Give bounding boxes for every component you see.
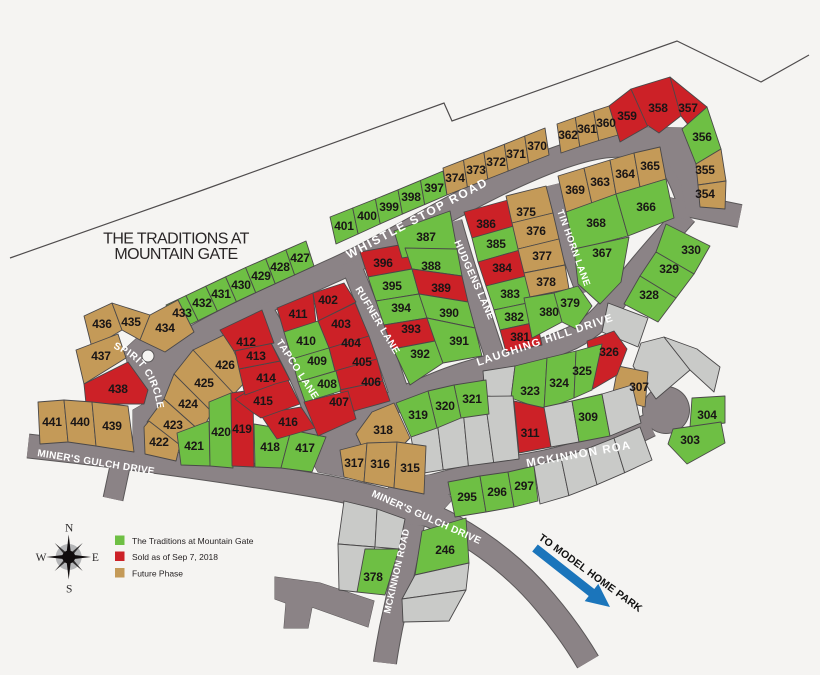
- svg-text:329: 329: [659, 262, 679, 276]
- svg-text:425: 425: [194, 376, 214, 390]
- svg-text:368: 368: [586, 216, 606, 230]
- svg-text:Sold as of Sep 7, 2018: Sold as of Sep 7, 2018: [132, 552, 218, 562]
- svg-text:409: 409: [307, 354, 327, 368]
- svg-text:326: 326: [599, 345, 619, 359]
- svg-text:420: 420: [211, 425, 231, 439]
- svg-text:393: 393: [401, 322, 421, 336]
- svg-text:410: 410: [296, 334, 316, 348]
- svg-text:431: 431: [211, 287, 231, 301]
- svg-text:246: 246: [435, 543, 455, 557]
- svg-text:372: 372: [486, 155, 506, 169]
- svg-text:375: 375: [516, 205, 536, 219]
- svg-text:320: 320: [435, 399, 455, 413]
- svg-text:408: 408: [317, 377, 337, 391]
- svg-text:430: 430: [231, 278, 251, 292]
- svg-text:391: 391: [449, 334, 469, 348]
- svg-text:365: 365: [640, 159, 660, 173]
- svg-text:374: 374: [445, 171, 465, 185]
- svg-text:402: 402: [318, 293, 338, 307]
- svg-text:385: 385: [486, 237, 506, 251]
- svg-text:378: 378: [536, 275, 556, 289]
- svg-text:403: 403: [331, 317, 351, 331]
- svg-text:401: 401: [334, 219, 354, 233]
- svg-text:419: 419: [232, 422, 252, 436]
- svg-text:371: 371: [506, 147, 526, 161]
- svg-text:357: 357: [678, 101, 698, 115]
- svg-text:366: 366: [636, 200, 656, 214]
- svg-text:433: 433: [172, 306, 192, 320]
- svg-text:400: 400: [357, 209, 377, 223]
- svg-text:363: 363: [590, 175, 610, 189]
- svg-text:304: 304: [697, 408, 717, 422]
- svg-text:383: 383: [500, 287, 520, 301]
- svg-text:316: 316: [370, 457, 390, 471]
- svg-text:N: N: [65, 523, 74, 535]
- svg-text:399: 399: [379, 200, 399, 214]
- svg-text:405: 405: [352, 355, 372, 369]
- svg-text:412: 412: [236, 335, 256, 349]
- svg-text:355: 355: [695, 163, 715, 177]
- svg-text:318: 318: [373, 423, 393, 437]
- svg-text:330: 330: [681, 243, 701, 257]
- svg-text:434: 434: [155, 321, 175, 335]
- svg-text:397: 397: [424, 181, 444, 195]
- svg-text:427: 427: [290, 251, 310, 265]
- svg-text:295: 295: [457, 490, 477, 504]
- svg-text:325: 325: [572, 364, 592, 378]
- svg-text:296: 296: [487, 485, 507, 499]
- svg-text:377: 377: [532, 249, 552, 263]
- svg-text:423: 423: [163, 418, 183, 432]
- svg-text:407: 407: [329, 395, 349, 409]
- svg-text:394: 394: [391, 301, 411, 315]
- svg-text:E: E: [92, 552, 99, 564]
- svg-text:311: 311: [521, 426, 540, 440]
- svg-text:324: 324: [549, 376, 569, 390]
- svg-text:369: 369: [565, 183, 585, 197]
- svg-text:429: 429: [251, 269, 271, 283]
- svg-text:362: 362: [558, 128, 578, 142]
- svg-text:411: 411: [289, 307, 308, 321]
- svg-text:414: 414: [256, 371, 276, 385]
- svg-text:418: 418: [260, 440, 280, 454]
- svg-text:382: 382: [504, 310, 524, 324]
- svg-text:426: 426: [215, 358, 235, 372]
- svg-text:428: 428: [270, 260, 290, 274]
- svg-text:387: 387: [416, 230, 436, 244]
- svg-text:309: 309: [578, 410, 598, 424]
- svg-text:S: S: [66, 584, 72, 596]
- svg-text:Future Phase: Future Phase: [132, 569, 183, 579]
- svg-text:435: 435: [121, 315, 141, 329]
- svg-text:361: 361: [577, 122, 597, 136]
- svg-text:388: 388: [421, 259, 441, 273]
- svg-text:413: 413: [246, 349, 266, 363]
- svg-text:392: 392: [410, 347, 430, 361]
- svg-text:432: 432: [192, 296, 212, 310]
- svg-text:378: 378: [363, 570, 383, 584]
- svg-text:354: 354: [695, 187, 715, 201]
- svg-text:390: 390: [439, 306, 459, 320]
- svg-text:323: 323: [520, 384, 540, 398]
- svg-text:370: 370: [527, 139, 547, 153]
- svg-text:303: 303: [680, 433, 700, 447]
- svg-text:395: 395: [382, 279, 402, 293]
- svg-text:439: 439: [102, 419, 122, 433]
- svg-text:386: 386: [476, 217, 496, 231]
- svg-text:317: 317: [344, 456, 364, 470]
- svg-text:380: 380: [539, 305, 559, 319]
- svg-text:416: 416: [278, 415, 298, 429]
- svg-text:424: 424: [178, 397, 198, 411]
- svg-text:321: 321: [462, 392, 482, 406]
- svg-text:436: 436: [92, 317, 112, 331]
- svg-text:328: 328: [639, 288, 659, 302]
- svg-text:364: 364: [615, 167, 635, 181]
- svg-text:417: 417: [295, 441, 315, 455]
- svg-text:376: 376: [526, 224, 546, 238]
- svg-text:356: 356: [692, 130, 712, 144]
- svg-text:THE TRADITIONS AT: THE TRADITIONS AT: [103, 231, 249, 248]
- svg-text:398: 398: [401, 190, 421, 204]
- svg-text:360: 360: [596, 116, 616, 130]
- svg-text:396: 396: [373, 256, 393, 270]
- svg-text:441: 441: [42, 415, 62, 429]
- svg-text:The Traditions at Mountain Gat: The Traditions at Mountain Gate: [132, 536, 254, 546]
- svg-text:415: 415: [253, 394, 273, 408]
- svg-text:404: 404: [341, 336, 361, 350]
- svg-text:367: 367: [592, 246, 612, 260]
- svg-text:421: 421: [184, 439, 204, 453]
- svg-text:W: W: [36, 552, 47, 564]
- svg-text:319: 319: [408, 408, 428, 422]
- svg-text:315: 315: [400, 461, 420, 475]
- svg-text:297: 297: [514, 479, 534, 493]
- svg-text:437: 437: [91, 349, 111, 363]
- svg-text:379: 379: [560, 296, 580, 310]
- svg-text:384: 384: [492, 261, 512, 275]
- svg-text:406: 406: [361, 375, 381, 389]
- svg-text:389: 389: [431, 281, 451, 295]
- svg-text:438: 438: [108, 382, 128, 396]
- svg-text:422: 422: [149, 435, 169, 449]
- svg-text:440: 440: [70, 415, 90, 429]
- svg-text:307: 307: [629, 380, 649, 394]
- svg-text:358: 358: [648, 101, 668, 115]
- svg-text:359: 359: [617, 109, 637, 123]
- svg-text:MOUNTAIN GATE: MOUNTAIN GATE: [114, 246, 237, 263]
